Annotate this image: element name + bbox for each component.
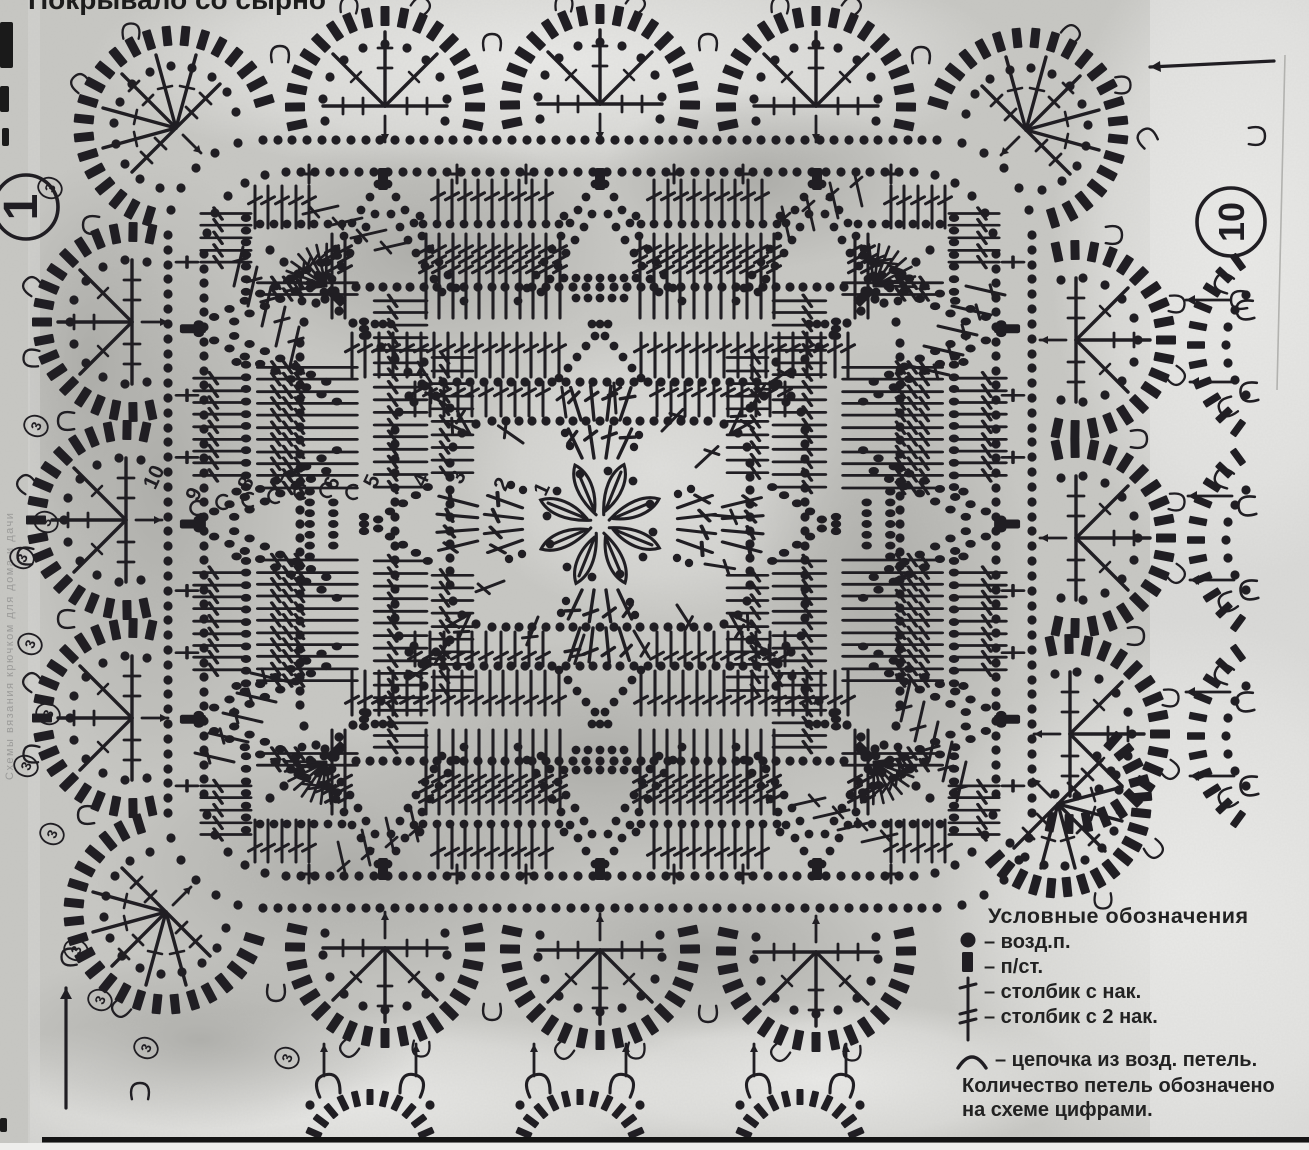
svg-text:на схеме цифрами.: на схеме цифрами. <box>962 1099 1153 1121</box>
svg-text:Покрывало со сырно: Покрывало со сырно <box>28 0 326 15</box>
svg-text:– п/ст.: – п/ст. <box>984 956 1043 978</box>
svg-text:Схемы вязания крючком для дома: Схемы вязания крючком для дома и дачи <box>4 512 16 780</box>
svg-text:Условные обозначения: Условные обозначения <box>988 904 1249 928</box>
svg-text:– столбик с 2 нак.: – столбик с 2 нак. <box>984 1006 1158 1028</box>
svg-text:– цепочка из возд. петель.: – цепочка из возд. петель. <box>995 1049 1257 1071</box>
svg-text:– возд.п.: – возд.п. <box>984 931 1071 953</box>
svg-text:– столбик с нак.: – столбик с нак. <box>984 981 1141 1003</box>
svg-text:Количество петель обозначено: Количество петель обозначено <box>962 1075 1275 1097</box>
svg-text:10: 10 <box>1211 202 1252 242</box>
svg-text:1: 1 <box>0 194 48 221</box>
